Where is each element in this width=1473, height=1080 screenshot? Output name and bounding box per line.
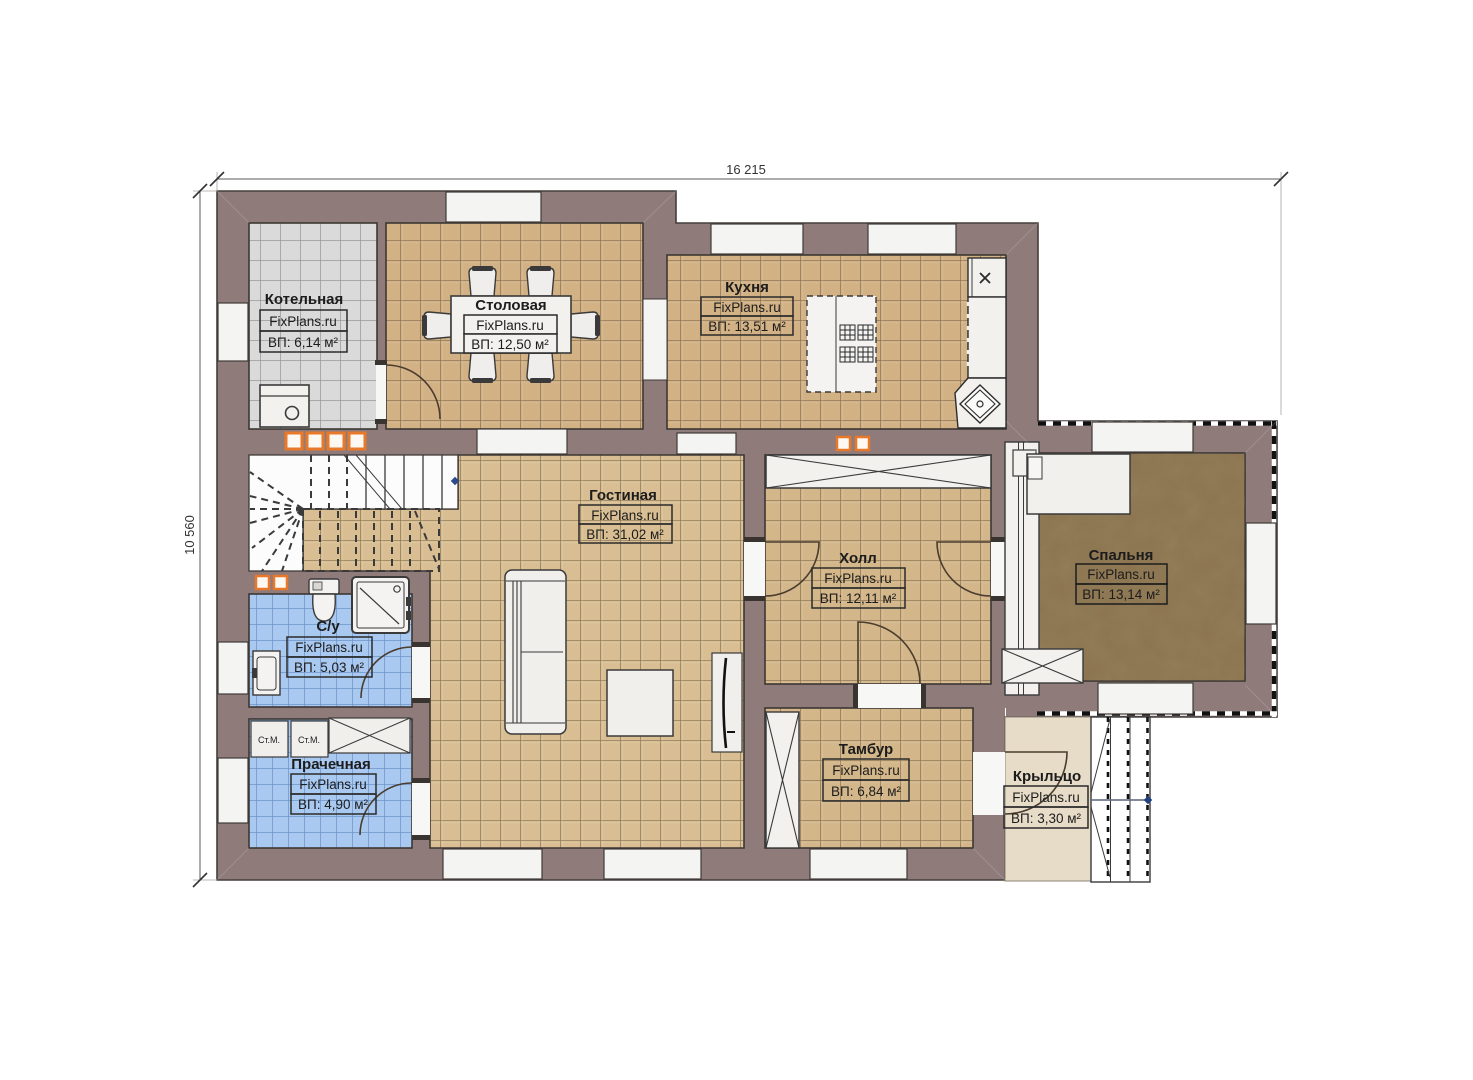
svg-text:ВП: 13,14 м²: ВП: 13,14 м² [1082, 587, 1160, 602]
svg-text:ВП: 6,84 м²: ВП: 6,84 м² [831, 784, 902, 799]
svg-text:Прачечная: Прачечная [291, 756, 370, 773]
svg-text:ВП: 4,90 м²: ВП: 4,90 м² [298, 797, 369, 812]
svg-text:FixPlans.ru: FixPlans.ru [1012, 790, 1080, 805]
svg-text:ВП: 6,14 м²: ВП: 6,14 м² [268, 335, 339, 350]
svg-text:Спальня: Спальня [1089, 547, 1154, 564]
svg-text:FixPlans.ru: FixPlans.ru [713, 300, 781, 315]
svg-text:ВП: 31,02 м²: ВП: 31,02 м² [586, 527, 664, 542]
svg-text:ВП: 12,11 м²: ВП: 12,11 м² [820, 591, 897, 606]
svg-text:FixPlans.ru: FixPlans.ru [824, 571, 892, 586]
svg-text:ВП: 3,30 м²: ВП: 3,30 м² [1011, 811, 1082, 826]
svg-text:Столовая: Столовая [475, 297, 546, 314]
svg-text:С/у: С/у [316, 618, 340, 635]
svg-text:Крыльцо: Крыльцо [1013, 768, 1081, 785]
svg-text:FixPlans.ru: FixPlans.ru [591, 508, 659, 523]
svg-text:ВП: 12,50 м²: ВП: 12,50 м² [471, 337, 549, 352]
svg-text:Тамбур: Тамбур [839, 741, 893, 758]
svg-text:Кухня: Кухня [725, 279, 769, 296]
svg-text:Ст.М.: Ст.М. [258, 735, 280, 745]
svg-text:Котельная: Котельная [265, 291, 344, 308]
svg-text:FixPlans.ru: FixPlans.ru [269, 314, 337, 329]
svg-text:ВП: 13,51 м²: ВП: 13,51 м² [708, 319, 786, 334]
svg-text:FixPlans.ru: FixPlans.ru [1087, 567, 1155, 582]
svg-text:FixPlans.ru: FixPlans.ru [299, 777, 367, 792]
svg-text:ВП: 5,03 м²: ВП: 5,03 м² [294, 660, 365, 675]
svg-text:FixPlans.ru: FixPlans.ru [832, 763, 900, 778]
svg-text:Гостиная: Гостиная [589, 487, 657, 504]
svg-text:Холл: Холл [839, 550, 877, 567]
svg-text:Ст.М.: Ст.М. [298, 735, 320, 745]
svg-text:16 215: 16 215 [726, 162, 766, 177]
svg-text:10 560: 10 560 [182, 515, 197, 555]
svg-text:FixPlans.ru: FixPlans.ru [295, 640, 363, 655]
svg-text:FixPlans.ru: FixPlans.ru [476, 318, 544, 333]
